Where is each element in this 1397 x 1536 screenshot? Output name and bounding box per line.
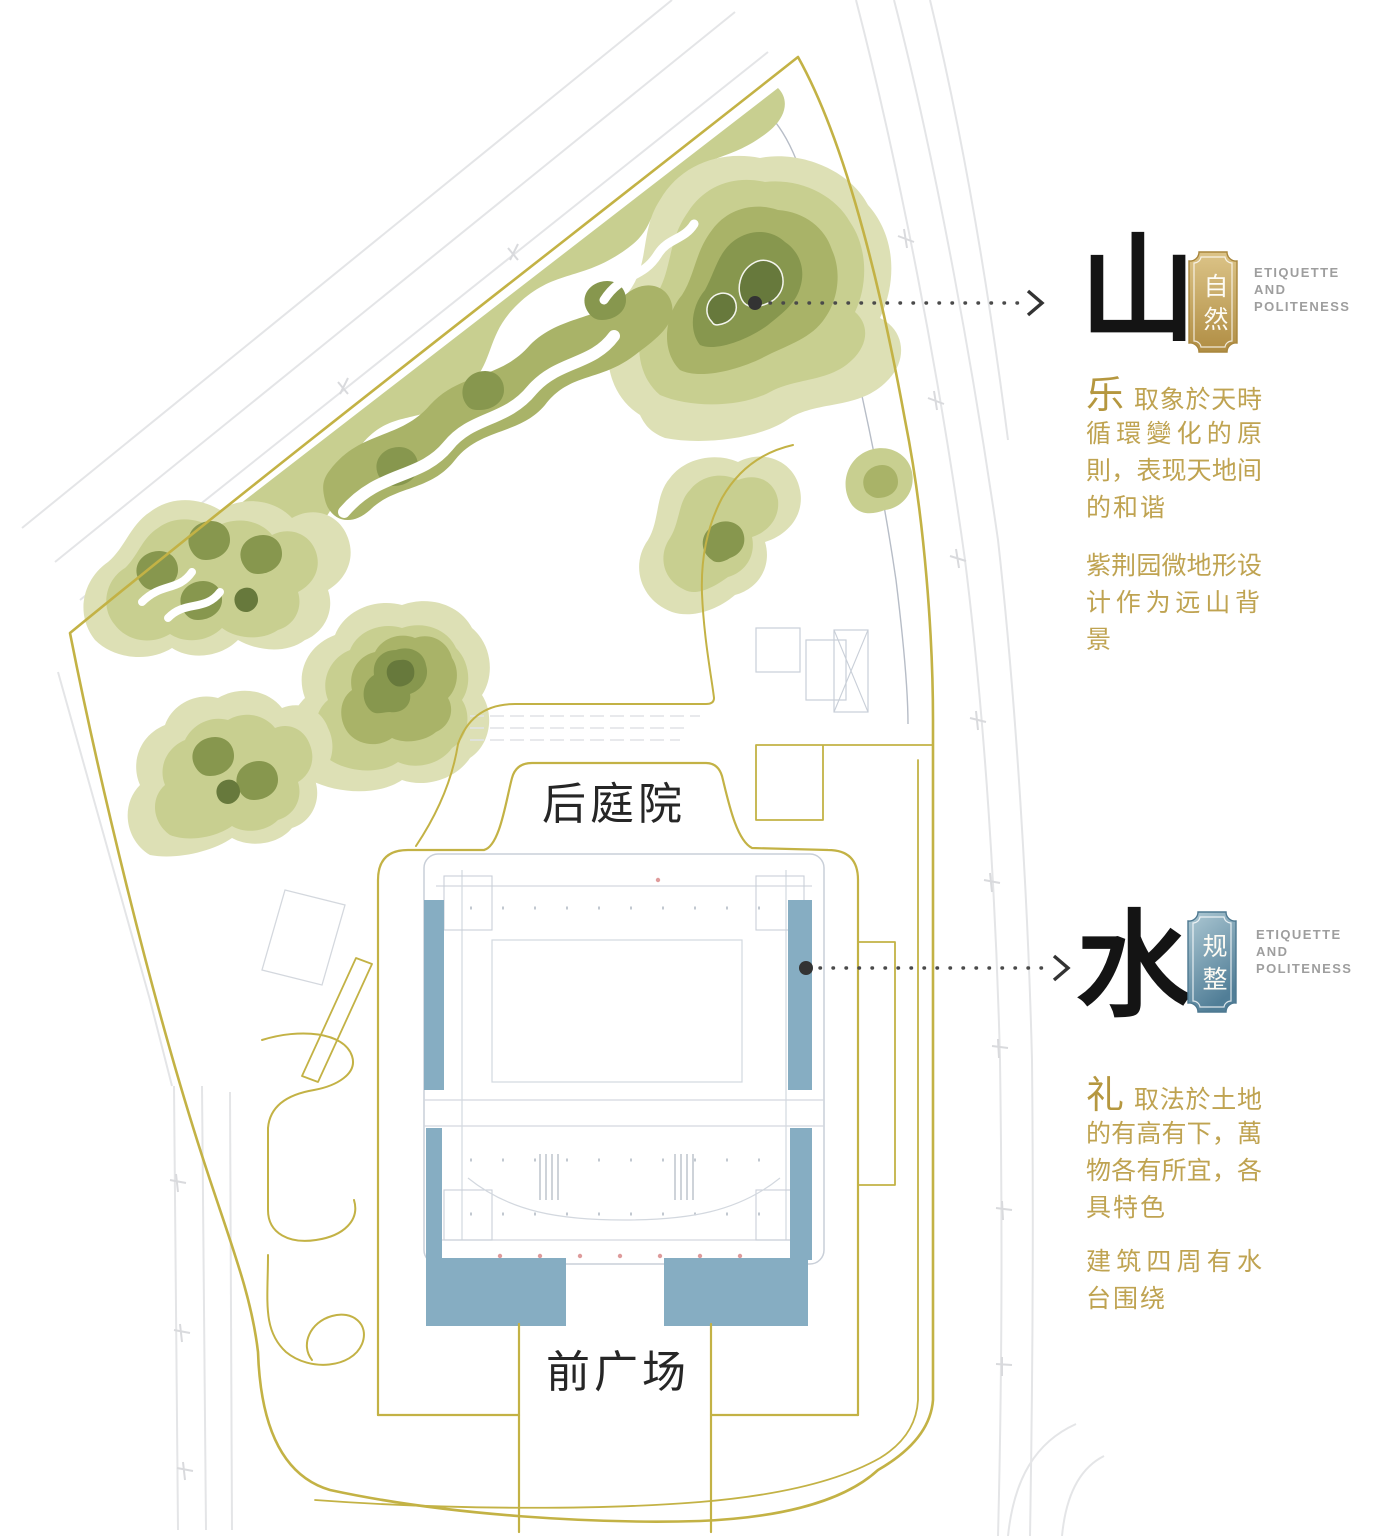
- water-glyph: 水: [1076, 910, 1192, 1026]
- water-para2-line: 台围绕: [1086, 1281, 1262, 1318]
- masterplan-diagram: 后庭院 前广场 山 自然 ETIQUETTE AND POLITENESS 乐 …: [0, 0, 1397, 1536]
- mountain-etiquette-caption: ETIQUETTE AND POLITENESS: [1254, 264, 1350, 315]
- mountain-para1-line: 則，表现天地间: [1086, 453, 1262, 490]
- mountain-paragraph-1: 乐 取象於天時 循環變化的原 則，表现天地间 的和谐: [1086, 376, 1262, 527]
- label-front-plaza: 前广场: [546, 1336, 690, 1400]
- mountain-glyph: 山: [1080, 234, 1196, 350]
- water-paragraph-2: 建筑四周有水 台围绕: [1086, 1244, 1262, 1318]
- order-seal-text: 规整: [1186, 910, 1238, 1014]
- nature-seal: 自然: [1187, 250, 1239, 354]
- mountain-lead-text: 取象於天時: [1134, 380, 1262, 420]
- water-para1-line: 的有高有下，萬: [1086, 1116, 1262, 1153]
- water-anchor-dot: [799, 961, 813, 975]
- water-arrow-icon: [1054, 956, 1068, 980]
- water-lead-char: 礼: [1086, 1076, 1124, 1116]
- water-lead-text: 取法於土地: [1134, 1080, 1262, 1120]
- water-etiquette-caption: ETIQUETTE AND POLITENESS: [1256, 926, 1352, 977]
- mountain-arrow-icon: [1028, 291, 1042, 315]
- order-seal: 规整: [1186, 910, 1238, 1014]
- water-para1-line: 物各有所宜，各: [1086, 1153, 1262, 1190]
- water-features: [424, 900, 812, 1326]
- label-back-courtyard: 后庭院: [542, 768, 686, 832]
- water-para2-line: 建筑四周有水: [1086, 1244, 1262, 1281]
- mountain-lead-char: 乐: [1086, 376, 1124, 416]
- mountain-para2-line: 计作为远山背景: [1086, 585, 1262, 659]
- mountain-para1-line: 的和谐: [1086, 490, 1262, 527]
- mountain-para2-line: 紫荆园微地形设: [1086, 548, 1262, 585]
- mountain-para1-line: 循環變化的原: [1086, 416, 1262, 453]
- water-para1-line: 具特色: [1086, 1190, 1262, 1227]
- mountain-paragraph-2: 紫荆园微地形设 计作为远山背景: [1086, 548, 1262, 659]
- water-paragraph-1: 礼 取法於土地 的有高有下，萬 物各有所宜，各 具特色: [1086, 1076, 1262, 1227]
- mountain-anchor-dot: [748, 296, 762, 310]
- nature-seal-text: 自然: [1187, 250, 1239, 354]
